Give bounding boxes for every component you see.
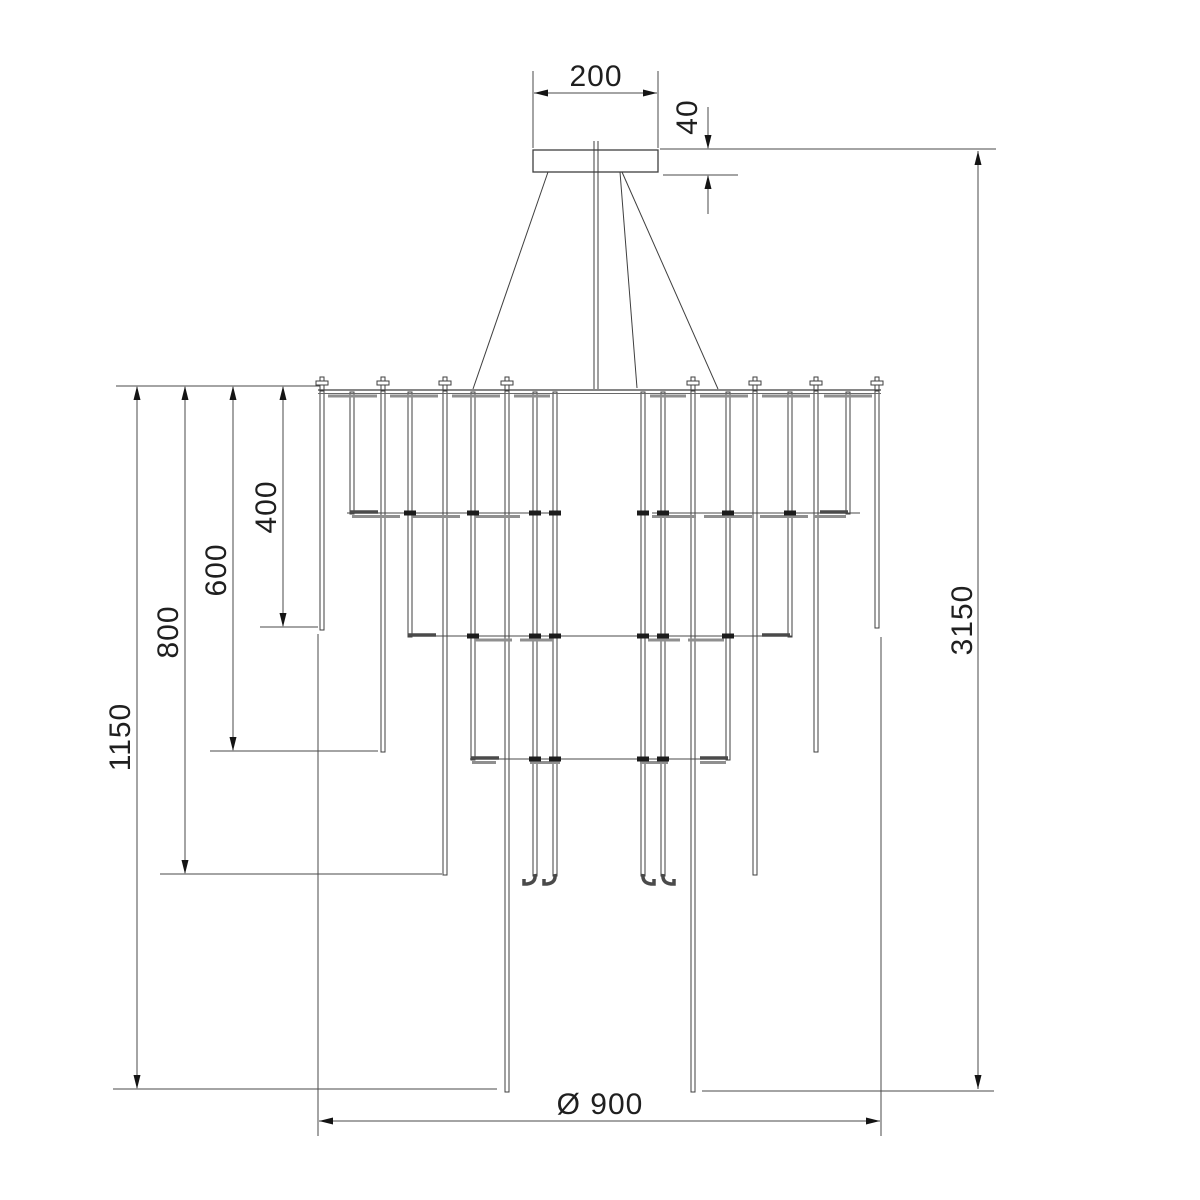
cross-finial [501,377,513,391]
dim-label-800: 800 [152,605,185,658]
chandelier-dimension-drawing: 200 40 3150 400 600 [0,0,1200,1200]
dimension-canopy-height: 40 [660,99,996,214]
suspension-wire-left [473,172,548,389]
arrowhead-left [534,90,548,97]
rod [320,391,324,630]
arrowhead-up [705,175,712,189]
rod [814,391,818,752]
dimension-body-diameter: Ø 900 [318,634,881,1136]
arrowhead-right [643,90,657,97]
dim-label-400: 400 [250,480,283,533]
arrowhead-up [975,151,982,165]
bracket-rod [350,392,354,514]
cross-finial [810,377,822,391]
cross-finial [687,377,699,391]
cross-finial [749,377,761,391]
rod [691,391,695,1092]
rod [875,391,879,628]
arrowhead-right [866,1118,880,1125]
dim-label-600: 600 [200,543,233,596]
arrowhead-down [705,135,712,149]
cross-finial [377,377,389,391]
canopy-assembly [473,141,718,389]
dim-label-200: 200 [569,60,622,93]
rod-hook [524,874,535,884]
dim-label-40: 40 [671,99,704,134]
top-cross-finials [316,377,883,391]
bracket-rod [726,392,730,760]
rod [753,391,757,875]
bracket-rod [846,392,850,514]
rod [505,391,509,1092]
tier-ring-3 [408,634,792,641]
dim-label-3150: 3150 [946,585,979,656]
rod-hook [544,874,555,884]
dim-label-1150: 1150 [104,703,137,772]
top-ring [318,390,881,396]
suspension-wire-right [622,172,718,389]
cross-finial [439,377,451,391]
dim-label-diameter: Ø 900 [557,1088,644,1121]
suspension-wire-center [620,172,637,388]
chandelier-dimension-drawing-page: 200 40 3150 400 600 [0,0,1200,1200]
cross-finial [316,377,328,391]
dimensions-rod-drops: 400 600 800 1150 [104,386,497,1089]
tier-ring-2 [347,511,860,517]
bracket-rod [471,392,475,760]
dimension-overall-height: 3150 [702,151,994,1091]
ceiling-canopy [533,150,658,172]
rod-hook [643,874,654,884]
arrowhead-down [975,1075,982,1089]
rod-hook [663,874,674,884]
hanging-rods [320,391,879,1092]
arrowhead-left [319,1118,333,1125]
rod [443,391,447,875]
dimension-canopy-width: 200 [533,60,658,148]
cross-finial [871,377,883,391]
chandelier-body [316,377,883,1092]
rod [381,391,385,752]
